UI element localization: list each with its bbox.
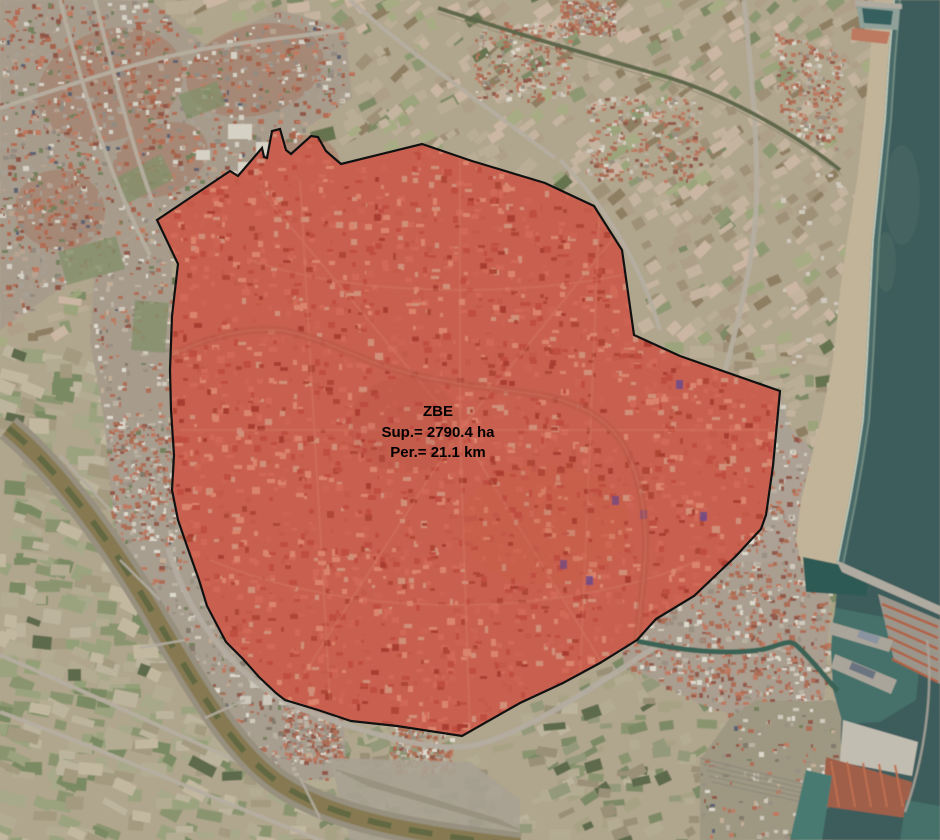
svg-text:Per.= 21.1 km: Per.= 21.1 km	[390, 444, 486, 461]
svg-text:ZBE: ZBE	[423, 403, 453, 420]
svg-text:Sup.= 2790.4 ha: Sup.= 2790.4 ha	[382, 424, 496, 441]
